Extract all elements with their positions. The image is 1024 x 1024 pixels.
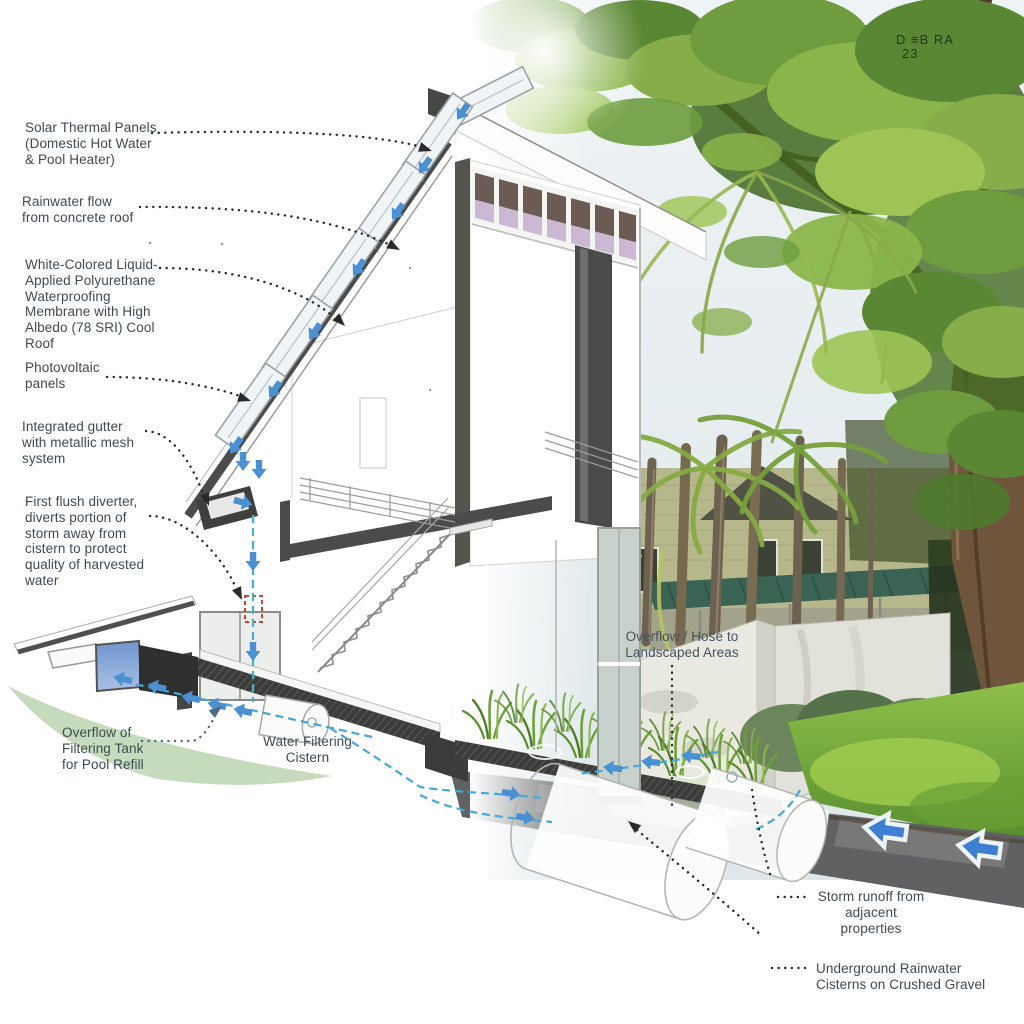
label-line: Photovoltaic	[25, 360, 100, 376]
label-line: Landscaped Areas	[598, 645, 766, 661]
label-line: Filtering Tank	[62, 741, 144, 757]
label-overflow-hose: Overflow / Hose to Landscaped Areas	[598, 629, 766, 661]
label-line: Overflow of	[62, 725, 144, 741]
label-line: Waterproofing	[25, 289, 158, 305]
label-line: Integrated gutter	[22, 419, 134, 435]
diagram-canvas: Solar Thermal Panels (Domestic Hot Water…	[0, 0, 1024, 1024]
watermark-line: D ≡B RA	[896, 33, 954, 47]
label-line: system	[22, 451, 134, 467]
label-line: (Domestic Hot Water	[25, 136, 157, 152]
label-water-filtering-cistern: Water Filtering Cistern	[245, 734, 370, 766]
label-solar-thermal-panels: Solar Thermal Panels (Domestic Hot Water…	[25, 120, 157, 167]
label-line: Overflow / Hose to	[598, 629, 766, 645]
leader-overflow-tank	[142, 714, 216, 741]
label-overflow-filtering-tank: Overflow of Filtering Tank for Pool Refi…	[62, 725, 144, 772]
label-line: quality of harvested	[25, 557, 144, 573]
label-line: Cistern	[245, 750, 370, 766]
tower-cut-wall	[455, 158, 470, 567]
pool-water	[96, 641, 141, 691]
label-line: White-Colored Liquid-	[25, 257, 158, 273]
leader-solar	[152, 132, 418, 146]
label-line: from concrete roof	[22, 210, 133, 226]
watermark: D ≡B RA 23	[896, 33, 954, 61]
wall-cut	[280, 500, 290, 562]
label-line: water	[25, 573, 144, 589]
pool	[48, 641, 198, 700]
pool-deck-board	[48, 644, 99, 668]
label-line: & Pool Heater)	[25, 152, 157, 168]
label-line: for Pool Refill	[62, 757, 144, 773]
leader-gutter	[146, 431, 203, 494]
label-line: Albedo (78 SRI) Cool	[25, 320, 158, 336]
label-line: Cisterns on Crushed Gravel	[816, 977, 985, 993]
label-line: Membrane with High	[25, 304, 158, 320]
label-line: cistern to protect	[25, 541, 144, 557]
label-integrated-gutter: Integrated gutter with metallic mesh sys…	[22, 419, 134, 466]
label-line: Underground Rainwater	[816, 961, 985, 977]
watermark-line: 23	[902, 47, 954, 61]
label-line: Rainwater flow	[22, 194, 133, 210]
label-line: Applied Polyurethane	[25, 273, 158, 289]
leader-pv	[107, 377, 240, 396]
label-line: Solar Thermal Panels	[25, 120, 157, 136]
label-line: properties	[813, 921, 929, 937]
label-line: Roof	[25, 336, 158, 352]
leader-first-flush	[150, 516, 236, 588]
label-line: diverts portion of	[25, 510, 144, 526]
label-line: Storm runoff from	[813, 889, 929, 905]
label-line: First flush diverter,	[25, 494, 144, 510]
label-first-flush-diverter: First flush diverter, diverts portion of…	[25, 494, 144, 589]
label-line: storm away from	[25, 526, 144, 542]
label-line: Water Filtering	[245, 734, 370, 750]
label-line: adjacent	[813, 905, 929, 921]
label-photovoltaic-panels: Photovoltaic panels	[25, 360, 100, 392]
label-line: with metallic mesh	[22, 435, 134, 451]
label-rainwater-flow: Rainwater flow from concrete roof	[22, 194, 133, 226]
label-storm-runoff: Storm runoff from adjacent properties	[813, 889, 929, 936]
label-waterproofing-membrane: White-Colored Liquid- Applied Polyuretha…	[25, 257, 158, 352]
label-underground-cisterns: Underground Rainwater Cisterns on Crushe…	[816, 961, 985, 993]
label-line: panels	[25, 376, 100, 392]
